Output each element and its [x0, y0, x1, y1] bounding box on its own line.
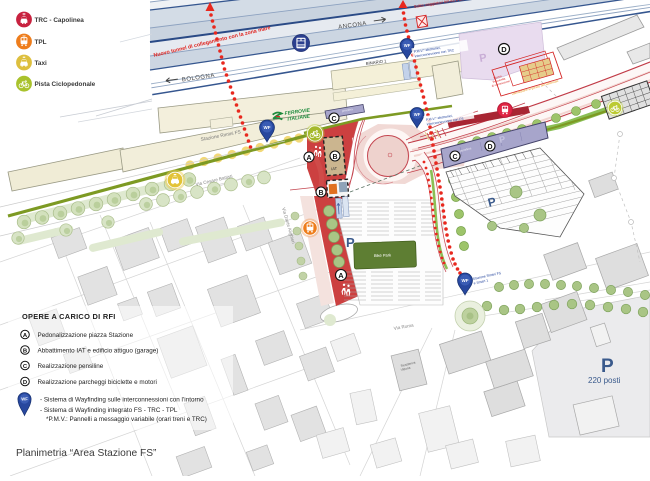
svg-text:Realizzazione parcheggi bicicl: Realizzazione parcheggi biciclette e mot… [38, 379, 157, 386]
svg-text:D: D [23, 380, 27, 386]
svg-text:Bike Park: Bike Park [374, 252, 391, 258]
svg-text:- Sistema di Wayfinding sulle: - Sistema di Wayfinding sulle interconne… [40, 397, 204, 404]
svg-text:TRC - Capolinea: TRC - Capolinea [35, 17, 85, 24]
svg-text:*P.M.V.: Pannelli a messaggio: *P.M.V.: Pannelli a messaggio variabile … [46, 416, 207, 423]
svg-text:C: C [452, 154, 457, 161]
svg-text:P: P [601, 356, 614, 377]
svg-text:Realizzazione pensiline: Realizzazione pensiline [38, 363, 104, 370]
svg-text:WF: WF [404, 43, 411, 48]
svg-text:WF: WF [264, 125, 271, 130]
svg-text:OPERE A CARICO DI RFI: OPERE A CARICO DI RFI [22, 312, 116, 321]
svg-text:D: D [487, 144, 492, 151]
svg-text:A: A [23, 333, 28, 339]
svg-text:B: B [332, 154, 337, 161]
svg-text:IAT: IAT [331, 166, 338, 172]
svg-text:TPL: TPL [35, 39, 47, 46]
svg-text:B: B [318, 190, 323, 197]
svg-text:Pista Ciclopedonale: Pista Ciclopedonale [35, 81, 96, 88]
svg-text:- Sistema di Wayfinding integr: - Sistema di Wayfinding integrato FS - T… [40, 407, 178, 414]
svg-text:Pedonalizzazione piazza Stazio: Pedonalizzazione piazza Stazione [38, 332, 134, 339]
svg-text:C: C [23, 364, 28, 370]
svg-text:WF: WF [414, 112, 421, 117]
svg-text:A: A [306, 155, 311, 162]
svg-text:Abbattimento IAT e edificio at: Abbattimento IAT e edificio attiguo (gar… [38, 347, 159, 354]
svg-text:D: D [501, 45, 507, 54]
svg-text:220 posti: 220 posti [588, 376, 621, 385]
svg-text:WF: WF [21, 397, 28, 402]
svg-text:Taxi: Taxi [35, 60, 48, 67]
svg-text:C: C [331, 116, 336, 123]
svg-text:B: B [23, 349, 27, 355]
svg-text:A: A [338, 271, 344, 280]
svg-text:Planimetria “Area Stazione FS”: Planimetria “Area Stazione FS” [16, 448, 157, 459]
svg-text:WF: WF [462, 278, 469, 283]
